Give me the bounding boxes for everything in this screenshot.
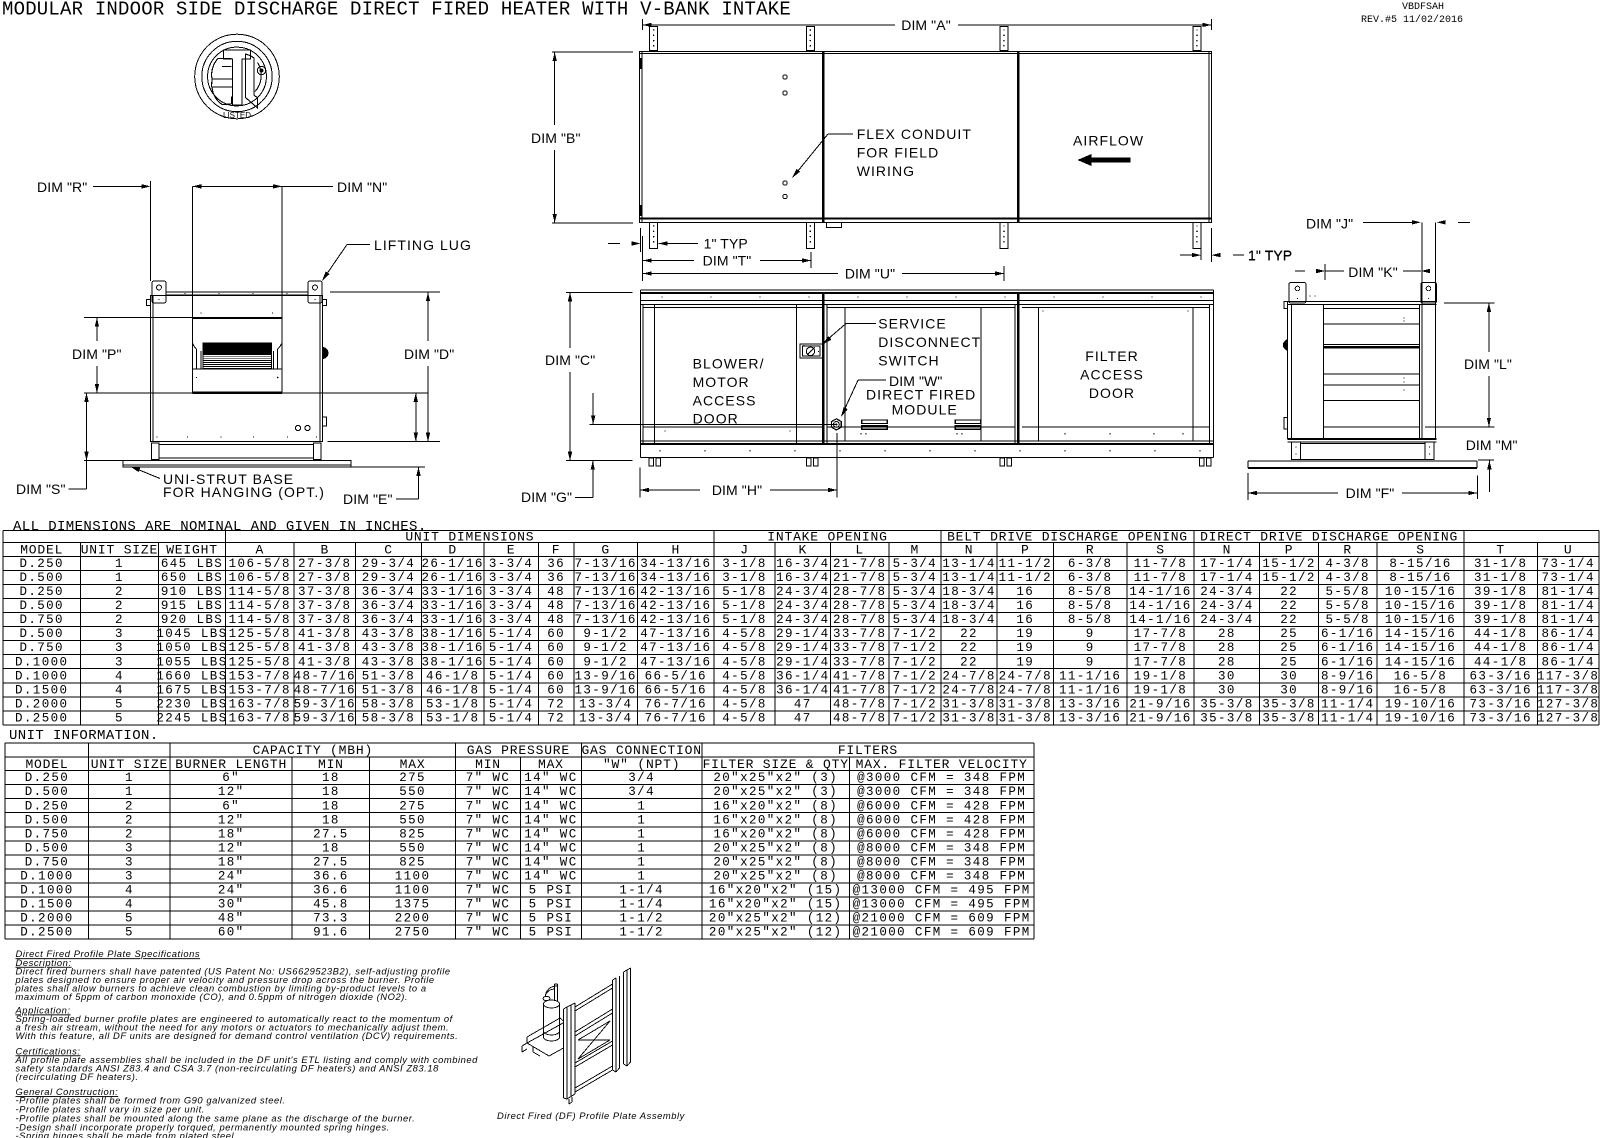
svg-text:28: 28 <box>1218 627 1236 641</box>
svg-text:D.250: D.250 <box>19 585 64 599</box>
svg-text:1" TYP: 1" TYP <box>1248 247 1292 263</box>
svg-text:ACCESS: ACCESS <box>1080 366 1144 382</box>
svg-text:59-3/16: 59-3/16 <box>294 711 356 725</box>
svg-text:24-3/4: 24-3/4 <box>1200 599 1253 613</box>
svg-text:37-3/8: 37-3/8 <box>298 585 351 599</box>
svg-text:60: 60 <box>547 683 565 697</box>
svg-text:125-5/8: 125-5/8 <box>229 655 291 669</box>
svg-text:14" WC: 14" WC <box>524 785 577 799</box>
svg-text:@8000 CFM = 348 FPM: @8000 CFM = 348 FPM <box>857 841 1026 855</box>
svg-text:11-1/16: 11-1/16 <box>1059 683 1121 697</box>
svg-text:7-13/16: 7-13/16 <box>574 585 636 599</box>
svg-text:31-1/8: 31-1/8 <box>1474 557 1527 571</box>
svg-text:14-15/16: 14-15/16 <box>1385 655 1456 669</box>
svg-text:17-7/8: 17-7/8 <box>1134 655 1187 669</box>
svg-text:5: 5 <box>115 711 124 725</box>
svg-text:20"x25"x2" (8): 20"x25"x2" (8) <box>713 841 838 855</box>
svg-text:3: 3 <box>115 655 124 669</box>
svg-text:1045 LBS: 1045 LBS <box>156 627 227 641</box>
svg-text:24": 24" <box>218 884 245 898</box>
svg-text:13-9/16: 13-9/16 <box>574 683 636 697</box>
svg-text:UNIT INFORMATION.: UNIT INFORMATION. <box>9 728 159 744</box>
svg-text:81-1/4: 81-1/4 <box>1541 599 1594 613</box>
svg-text:4-5/8: 4-5/8 <box>722 627 767 641</box>
svg-text:MAX. FILTER VELOCITY: MAX. FILTER VELOCITY <box>856 757 1028 772</box>
svg-text:34-13/16: 34-13/16 <box>640 557 711 571</box>
svg-text:5-5/8: 5-5/8 <box>1325 613 1370 627</box>
svg-text:ACCESS: ACCESS <box>693 392 757 408</box>
svg-text:117-3/8: 117-3/8 <box>1537 669 1599 683</box>
svg-text:42-13/16: 42-13/16 <box>640 599 711 613</box>
svg-text:46-1/8: 46-1/8 <box>426 669 479 683</box>
svg-text:L: L <box>855 543 864 558</box>
svg-text:35-3/8: 35-3/8 <box>1200 697 1253 711</box>
svg-text:43-3/8: 43-3/8 <box>362 627 415 641</box>
svg-text:1100: 1100 <box>395 869 431 883</box>
svg-text:24-7/8: 24-7/8 <box>999 669 1052 683</box>
svg-text:5 PSI: 5 PSI <box>529 898 574 912</box>
svg-text:76-7/16: 76-7/16 <box>645 697 707 711</box>
svg-text:63-3/16: 63-3/16 <box>1470 669 1532 683</box>
svg-text:5: 5 <box>125 926 134 940</box>
svg-text:7-13/16: 7-13/16 <box>574 599 636 613</box>
svg-text:29-3/4: 29-3/4 <box>362 571 415 585</box>
svg-text:86-1/4: 86-1/4 <box>1541 655 1594 669</box>
svg-text:29-3/4: 29-3/4 <box>362 557 415 571</box>
svg-text:73-3/16: 73-3/16 <box>1470 711 1532 725</box>
svg-text:5-1/4: 5-1/4 <box>489 697 534 711</box>
svg-text:MODEL: MODEL <box>20 543 63 558</box>
svg-text:18: 18 <box>322 813 340 827</box>
svg-text:35-3/8: 35-3/8 <box>1262 711 1315 725</box>
svg-text:5: 5 <box>115 697 124 711</box>
svg-text:51-3/8: 51-3/8 <box>362 669 415 683</box>
svg-text:30: 30 <box>1280 669 1298 683</box>
svg-text:48-7/8: 48-7/8 <box>833 711 886 725</box>
svg-text:7" WC: 7" WC <box>466 827 511 841</box>
svg-text:31-3/8: 31-3/8 <box>999 697 1052 711</box>
svg-text:6": 6" <box>222 771 240 785</box>
svg-text:12": 12" <box>218 841 245 855</box>
svg-text:BLOWER/: BLOWER/ <box>693 356 765 372</box>
svg-text:1: 1 <box>115 557 124 571</box>
svg-text:11-1/2: 11-1/2 <box>999 571 1052 585</box>
svg-text:5 PSI: 5 PSI <box>529 884 574 898</box>
svg-text:24-3/4: 24-3/4 <box>1200 613 1253 627</box>
svg-text:1: 1 <box>637 841 646 855</box>
svg-text:81-1/4: 81-1/4 <box>1541 585 1594 599</box>
svg-text:12": 12" <box>218 785 245 799</box>
svg-text:11-1/4: 11-1/4 <box>1321 711 1374 725</box>
svg-text:22: 22 <box>960 641 978 655</box>
svg-text:45.8: 45.8 <box>313 898 349 912</box>
svg-text:21-9/16: 21-9/16 <box>1129 711 1191 725</box>
svg-text:24-7/8: 24-7/8 <box>942 669 995 683</box>
svg-text:5-3/4: 5-3/4 <box>893 613 938 627</box>
svg-text:7-1/2: 7-1/2 <box>893 683 938 697</box>
svg-text:5-3/4: 5-3/4 <box>893 585 938 599</box>
svg-text:D.500: D.500 <box>25 785 70 799</box>
svg-text:13-1/4: 13-1/4 <box>942 571 995 585</box>
svg-text:9: 9 <box>1086 655 1095 669</box>
svg-text:C: C <box>384 543 393 558</box>
svg-text:DIM "G": DIM "G" <box>521 489 572 505</box>
svg-text:72: 72 <box>547 697 565 711</box>
svg-text:16: 16 <box>1016 599 1034 613</box>
svg-text:AIRFLOW: AIRFLOW <box>1073 133 1144 149</box>
svg-text:31-1/8: 31-1/8 <box>1474 571 1527 585</box>
svg-text:2230 LBS: 2230 LBS <box>156 697 227 711</box>
svg-text:1055 LBS: 1055 LBS <box>156 655 227 669</box>
svg-text:FLEX CONDUIT: FLEX CONDUIT <box>857 126 972 142</box>
svg-text:8-15/16: 8-15/16 <box>1389 571 1451 585</box>
svg-text:WIRING: WIRING <box>857 163 915 179</box>
svg-text:DIM "B": DIM "B" <box>531 130 581 146</box>
svg-text:3: 3 <box>125 855 134 869</box>
svg-text:29-1/4: 29-1/4 <box>776 655 829 669</box>
svg-text:9: 9 <box>1086 627 1095 641</box>
svg-text:MODULAR INDOOR SIDE DISCHARGE: MODULAR INDOOR SIDE DISCHARGE DIRECT FIR… <box>2 0 791 21</box>
svg-text:D.500: D.500 <box>19 571 64 585</box>
svg-text:REV.#5 11/02/2016: REV.#5 11/02/2016 <box>1361 14 1463 26</box>
svg-text:9-1/2: 9-1/2 <box>583 655 628 669</box>
svg-text:R: R <box>1086 543 1095 558</box>
svg-text:26-1/16: 26-1/16 <box>421 557 483 571</box>
svg-text:2: 2 <box>125 799 134 813</box>
svg-text:22: 22 <box>1280 613 1298 627</box>
svg-text:3: 3 <box>115 627 124 641</box>
svg-text:4: 4 <box>115 683 124 697</box>
svg-text:-Spring hinges shall be made f: -Spring hinges shall be made from plated… <box>16 1130 238 1138</box>
svg-text:7" WC: 7" WC <box>466 841 511 855</box>
svg-text:1375: 1375 <box>395 898 431 912</box>
svg-text:8-5/8: 8-5/8 <box>1068 613 1113 627</box>
svg-text:125-5/8: 125-5/8 <box>229 627 291 641</box>
svg-text:106-5/8: 106-5/8 <box>229 557 291 571</box>
svg-text:10-15/16: 10-15/16 <box>1385 613 1456 627</box>
svg-text:1100: 1100 <box>395 884 431 898</box>
svg-text:1: 1 <box>125 771 134 785</box>
svg-text:48-7/16: 48-7/16 <box>294 683 356 697</box>
svg-text:38-1/16: 38-1/16 <box>421 641 483 655</box>
svg-text:127-3/8: 127-3/8 <box>1537 697 1599 711</box>
svg-text:4-5/8: 4-5/8 <box>722 641 767 655</box>
svg-text:36-1/4: 36-1/4 <box>776 669 829 683</box>
svg-text:48: 48 <box>547 599 565 613</box>
svg-text:4-5/8: 4-5/8 <box>722 669 767 683</box>
svg-text:"W" (NPT): "W" (NPT) <box>603 757 680 772</box>
svg-text:16-5/8: 16-5/8 <box>1394 683 1447 697</box>
svg-text:36-1/4: 36-1/4 <box>776 683 829 697</box>
svg-text:20"x25"x2" (3): 20"x25"x2" (3) <box>713 771 838 785</box>
svg-text:D.250: D.250 <box>19 557 64 571</box>
svg-text:3-1/8: 3-1/8 <box>722 571 767 585</box>
svg-text:D.500: D.500 <box>25 841 70 855</box>
svg-text:163-7/8: 163-7/8 <box>229 697 291 711</box>
svg-text:19: 19 <box>1016 641 1034 655</box>
svg-text:DIM "P": DIM "P" <box>72 346 122 362</box>
svg-text:76-7/16: 76-7/16 <box>645 711 707 725</box>
svg-text:BELT DRIVE DISCHARGE OPENING: BELT DRIVE DISCHARGE OPENING <box>947 530 1188 545</box>
svg-text:31-3/8: 31-3/8 <box>942 697 995 711</box>
svg-text:36-3/4: 36-3/4 <box>362 585 415 599</box>
svg-text:DIM "K": DIM "K" <box>1348 264 1398 280</box>
svg-text:LISTED: LISTED <box>223 111 251 120</box>
svg-text:19-10/16: 19-10/16 <box>1385 697 1456 711</box>
svg-text:D.500: D.500 <box>25 813 70 827</box>
svg-text:125-5/8: 125-5/8 <box>229 641 291 655</box>
svg-text:37-3/8: 37-3/8 <box>298 599 351 613</box>
svg-text:7" WC: 7" WC <box>466 785 511 799</box>
svg-text:GAS CONNECTION: GAS CONNECTION <box>581 743 701 758</box>
svg-text:27.5: 27.5 <box>313 855 349 869</box>
svg-text:21-9/16: 21-9/16 <box>1129 697 1191 711</box>
svg-text:915 LBS: 915 LBS <box>161 599 223 613</box>
svg-text:5 PSI: 5 PSI <box>529 926 574 940</box>
svg-text:D.1000: D.1000 <box>15 655 68 669</box>
svg-text:20"x25"x2" (8): 20"x25"x2" (8) <box>713 855 838 869</box>
svg-text:MOTOR: MOTOR <box>693 374 750 390</box>
svg-text:maximum of 5ppm of carbon mono: maximum of 5ppm of carbon monoxide (CO),… <box>16 991 409 1002</box>
svg-text:DIM "T": DIM "T" <box>703 253 752 269</box>
svg-text:275: 275 <box>399 771 426 785</box>
svg-text:36.6: 36.6 <box>313 869 349 883</box>
svg-text:36.6: 36.6 <box>313 884 349 898</box>
svg-text:K: K <box>798 543 807 558</box>
svg-text:73-3/16: 73-3/16 <box>1470 697 1532 711</box>
svg-text:30": 30" <box>218 898 245 912</box>
svg-text:D.2500: D.2500 <box>20 926 73 940</box>
svg-text:153-7/8: 153-7/8 <box>229 669 291 683</box>
svg-text:WEIGHT: WEIGHT <box>166 543 218 558</box>
svg-text:41-3/8: 41-3/8 <box>298 627 351 641</box>
svg-text:20"x25"x2" (3): 20"x25"x2" (3) <box>713 785 838 799</box>
svg-text:1: 1 <box>125 785 134 799</box>
svg-text:DIM "J": DIM "J" <box>1306 216 1353 232</box>
svg-text:48-7/8: 48-7/8 <box>833 697 886 711</box>
svg-text:SERVICE: SERVICE <box>878 316 947 332</box>
svg-text:91.6: 91.6 <box>313 926 349 940</box>
svg-text:30: 30 <box>1218 669 1236 683</box>
svg-text:7" WC: 7" WC <box>466 912 511 926</box>
svg-text:86-1/4: 86-1/4 <box>1541 641 1594 655</box>
svg-text:14-1/16: 14-1/16 <box>1129 613 1191 627</box>
svg-text:53-1/8: 53-1/8 <box>426 697 479 711</box>
svg-text:N: N <box>965 543 974 558</box>
svg-text:39-1/8: 39-1/8 <box>1474 613 1527 627</box>
svg-text:2: 2 <box>115 613 124 627</box>
svg-text:E: E <box>507 543 516 558</box>
svg-text:3: 3 <box>125 841 134 855</box>
svg-text:3/4: 3/4 <box>628 785 655 799</box>
svg-text:15-1/2: 15-1/2 <box>1262 557 1315 571</box>
svg-text:S: S <box>1156 543 1165 558</box>
svg-text:7-13/16: 7-13/16 <box>574 571 636 585</box>
svg-text:5-1/8: 5-1/8 <box>722 613 767 627</box>
svg-text:19-1/8: 19-1/8 <box>1134 683 1187 697</box>
svg-text:3-3/4: 3-3/4 <box>489 613 534 627</box>
svg-text:Direct Fired (DF) Profile Plat: Direct Fired (DF) Profile Plate Assembly <box>497 1110 686 1121</box>
svg-text:DIM "R": DIM "R" <box>37 179 87 195</box>
svg-text:D.1000: D.1000 <box>15 669 68 683</box>
svg-text:D.1500: D.1500 <box>20 898 73 912</box>
svg-text:3-1/8: 3-1/8 <box>722 557 767 571</box>
svg-text:53-1/8: 53-1/8 <box>426 711 479 725</box>
svg-text:18: 18 <box>322 799 340 813</box>
svg-text:D.1500: D.1500 <box>15 683 68 697</box>
svg-text:645 LBS: 645 LBS <box>161 557 223 571</box>
svg-text:27-3/8: 27-3/8 <box>298 571 351 585</box>
svg-text:48: 48 <box>547 585 565 599</box>
svg-text:5-5/8: 5-5/8 <box>1325 585 1370 599</box>
svg-text:24-3/4: 24-3/4 <box>776 599 829 613</box>
svg-text:24-7/8: 24-7/8 <box>942 683 995 697</box>
svg-text:5-3/4: 5-3/4 <box>893 571 938 585</box>
svg-text:3-3/4: 3-3/4 <box>489 585 534 599</box>
svg-text:@3000 CFM = 348 FPM: @3000 CFM = 348 FPM <box>857 785 1026 799</box>
svg-text:14-1/16: 14-1/16 <box>1129 599 1191 613</box>
svg-text:22: 22 <box>1280 599 1298 613</box>
svg-text:37-3/8: 37-3/8 <box>298 613 351 627</box>
svg-text:20"x25"x2" (12): 20"x25"x2" (12) <box>709 926 843 940</box>
svg-text:4-3/8: 4-3/8 <box>1325 571 1370 585</box>
svg-text:38-1/16: 38-1/16 <box>421 655 483 669</box>
svg-text:27.5: 27.5 <box>313 827 349 841</box>
svg-text:7" WC: 7" WC <box>466 926 511 940</box>
svg-text:4: 4 <box>115 669 124 683</box>
svg-text:1: 1 <box>637 869 646 883</box>
svg-text:1" TYP: 1" TYP <box>704 236 748 252</box>
svg-text:D.500: D.500 <box>19 599 64 613</box>
svg-text:DIM "F": DIM "F" <box>1346 485 1395 501</box>
svg-text:3-3/4: 3-3/4 <box>489 571 534 585</box>
svg-text:31-3/8: 31-3/8 <box>999 711 1052 725</box>
svg-text:26-1/16: 26-1/16 <box>421 571 483 585</box>
svg-text:127-3/8: 127-3/8 <box>1537 711 1599 725</box>
svg-text:D.1000: D.1000 <box>20 884 73 898</box>
svg-text:DIM "U": DIM "U" <box>845 266 895 282</box>
svg-text:24-3/4: 24-3/4 <box>1200 585 1253 599</box>
svg-text:2245 LBS: 2245 LBS <box>156 711 227 725</box>
svg-text:7" WC: 7" WC <box>466 799 511 813</box>
svg-text:33-7/8: 33-7/8 <box>833 627 886 641</box>
svg-text:7-13/16: 7-13/16 <box>574 613 636 627</box>
svg-text:FOR FIELD: FOR FIELD <box>857 144 940 160</box>
svg-text:33-7/8: 33-7/8 <box>833 641 886 655</box>
svg-text:7-1/2: 7-1/2 <box>893 655 938 669</box>
svg-text:3-3/4: 3-3/4 <box>489 599 534 613</box>
svg-text:920 LBS: 920 LBS <box>161 613 223 627</box>
svg-text:17-7/8: 17-7/8 <box>1134 627 1187 641</box>
svg-text:2: 2 <box>115 599 124 613</box>
svg-text:MODULE: MODULE <box>892 402 958 418</box>
svg-text:63-3/16: 63-3/16 <box>1470 683 1532 697</box>
svg-text:16"x20"x2" (8): 16"x20"x2" (8) <box>713 813 838 827</box>
svg-text:275: 275 <box>399 799 426 813</box>
svg-text:3/4: 3/4 <box>628 771 655 785</box>
svg-text:17-1/4: 17-1/4 <box>1200 571 1253 585</box>
svg-text:D.1000: D.1000 <box>20 869 73 883</box>
svg-text:6": 6" <box>222 799 240 813</box>
svg-text:14-1/16: 14-1/16 <box>1129 585 1191 599</box>
svg-text:@6000 CFM = 428 FPM: @6000 CFM = 428 FPM <box>857 799 1026 813</box>
svg-text:4-5/8: 4-5/8 <box>722 683 767 697</box>
svg-text:P: P <box>1021 543 1030 558</box>
svg-text:73-1/4: 73-1/4 <box>1541 557 1594 571</box>
svg-text:21-7/8: 21-7/8 <box>833 571 886 585</box>
svg-text:5: 5 <box>125 912 134 926</box>
svg-text:13-3/16: 13-3/16 <box>1059 711 1121 725</box>
svg-text:17-1/4: 17-1/4 <box>1200 557 1253 571</box>
svg-text:DIM "L": DIM "L" <box>1464 356 1512 372</box>
svg-text:@6000 CFM = 428 FPM: @6000 CFM = 428 FPM <box>857 813 1026 827</box>
svg-text:7-1/2: 7-1/2 <box>893 697 938 711</box>
svg-text:19: 19 <box>1016 655 1034 669</box>
svg-text:43-3/8: 43-3/8 <box>362 641 415 655</box>
svg-text:F: F <box>552 543 561 558</box>
svg-text:DIM "C": DIM "C" <box>545 352 595 368</box>
svg-text:B: B <box>320 543 329 558</box>
svg-text:2: 2 <box>115 585 124 599</box>
svg-text:58-3/8: 58-3/8 <box>362 697 415 711</box>
svg-text:3-3/4: 3-3/4 <box>489 557 534 571</box>
svg-text:@13000 CFM = 495 FPM: @13000 CFM = 495 FPM <box>853 898 1031 912</box>
svg-text:6-1/16: 6-1/16 <box>1321 627 1374 641</box>
svg-text:8-9/16: 8-9/16 <box>1321 669 1374 683</box>
svg-text:5-1/8: 5-1/8 <box>722 585 767 599</box>
svg-text:5-1/4: 5-1/4 <box>489 711 534 725</box>
svg-text:28-7/8: 28-7/8 <box>833 585 886 599</box>
svg-text:14" WC: 14" WC <box>524 827 577 841</box>
svg-text:2750: 2750 <box>395 926 431 940</box>
svg-text:P: P <box>1285 543 1294 558</box>
svg-text:12": 12" <box>218 813 245 827</box>
svg-text:30: 30 <box>1218 683 1236 697</box>
svg-text:10-15/16: 10-15/16 <box>1385 599 1456 613</box>
svg-text:31-3/8: 31-3/8 <box>942 711 995 725</box>
svg-text:5-1/4: 5-1/4 <box>489 627 534 641</box>
svg-text:7" WC: 7" WC <box>466 869 511 883</box>
svg-text:47: 47 <box>794 697 812 711</box>
svg-text:FILTER SIZE & QTY: FILTER SIZE & QTY <box>703 757 849 772</box>
svg-text:114-5/8: 114-5/8 <box>229 585 291 599</box>
svg-text:66-5/16: 66-5/16 <box>645 683 707 697</box>
svg-text:MIN: MIN <box>475 757 501 772</box>
svg-text:13-1/4: 13-1/4 <box>942 557 995 571</box>
svg-text:11-7/8: 11-7/8 <box>1134 571 1187 585</box>
svg-text:24-7/8: 24-7/8 <box>999 683 1052 697</box>
svg-text:11-1/16: 11-1/16 <box>1059 669 1121 683</box>
svg-text:47-13/16: 47-13/16 <box>640 655 711 669</box>
svg-text:GAS PRESSURE: GAS PRESSURE <box>467 743 570 758</box>
svg-text:18: 18 <box>322 841 340 855</box>
svg-text:D.750: D.750 <box>25 855 70 869</box>
svg-text:UNIT SIZE: UNIT SIZE <box>81 543 158 558</box>
svg-text:44-1/8: 44-1/8 <box>1474 627 1527 641</box>
svg-text:16"x20"x2" (8): 16"x20"x2" (8) <box>713 827 838 841</box>
svg-text:5-1/4: 5-1/4 <box>489 669 534 683</box>
svg-text:DIM "H": DIM "H" <box>712 482 762 498</box>
svg-text:VBDFSAH: VBDFSAH <box>1402 2 1444 13</box>
svg-text:34-13/16: 34-13/16 <box>640 571 711 585</box>
svg-text:73-1/4: 73-1/4 <box>1541 571 1594 585</box>
svg-text:D.2500: D.2500 <box>15 711 68 725</box>
svg-text:16: 16 <box>1016 585 1034 599</box>
svg-text:1: 1 <box>115 571 124 585</box>
svg-text:S: S <box>1416 543 1425 558</box>
svg-text:114-5/8: 114-5/8 <box>229 599 291 613</box>
svg-text:1: 1 <box>637 827 646 841</box>
